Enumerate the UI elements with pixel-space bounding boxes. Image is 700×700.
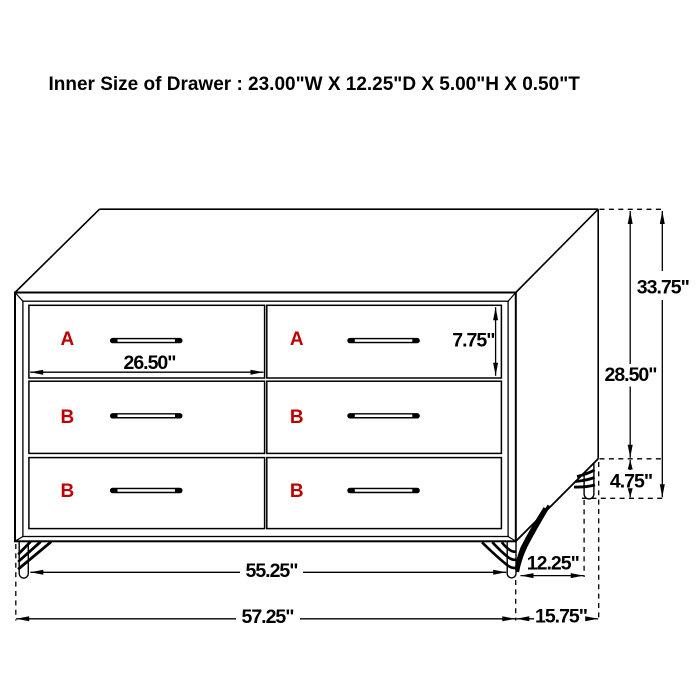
svg-text:A: A (61, 329, 75, 350)
svg-text:28.50": 28.50" (604, 364, 656, 386)
svg-text:7.75": 7.75" (452, 330, 494, 352)
svg-text:A: A (290, 329, 304, 350)
svg-text:B: B (290, 481, 304, 502)
svg-text:15.75": 15.75" (535, 605, 587, 627)
svg-text:4.75": 4.75" (610, 470, 652, 492)
svg-text:B: B (61, 481, 75, 502)
svg-text:B: B (290, 407, 304, 428)
svg-text:26.50": 26.50" (123, 352, 175, 374)
svg-text:33.75": 33.75" (637, 276, 689, 298)
svg-text:55.25": 55.25" (245, 560, 297, 582)
svg-text:Inner Size of Drawer : 23.00"W: Inner Size of Drawer : 23.00"W X 12.25"D… (49, 74, 581, 95)
svg-text:B: B (61, 407, 75, 428)
svg-text:12.25": 12.25" (527, 552, 579, 574)
svg-text:57.25": 57.25" (241, 606, 293, 628)
